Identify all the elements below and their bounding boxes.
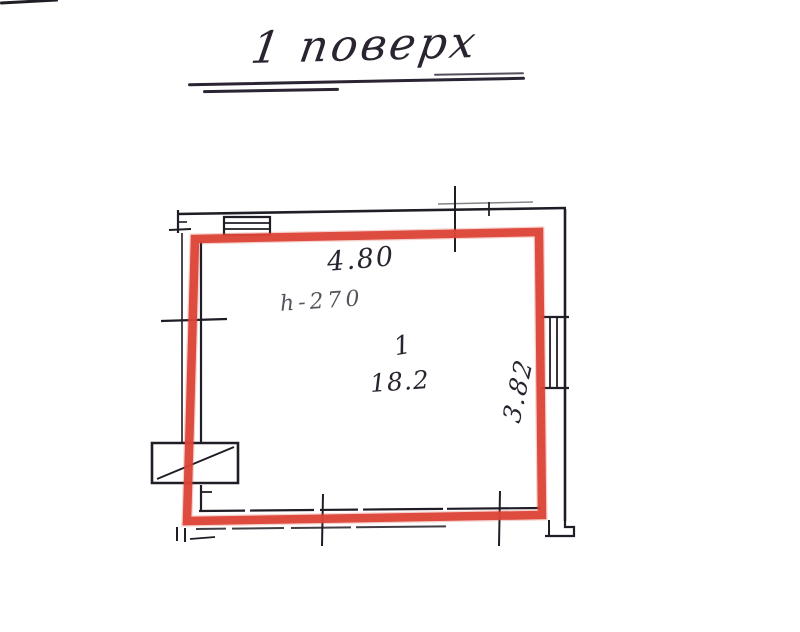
corner-tick-bottom-left-bar [190,537,215,539]
dimension-width-label: 4.80 [326,243,396,276]
ceiling-height-label: h-270 [279,288,364,316]
vent-box-diagonal [157,447,234,479]
wall-tick-left-upper [169,229,191,230]
room-outline-red [187,232,542,521]
outer-wall-top [177,208,566,214]
room-area-label: 18.2 [369,367,430,396]
floor-plan-drawing [0,0,800,632]
outer-wall-bottom [196,526,476,529]
outer-wall-top-double-stroke [438,202,533,204]
floor-plan-page: 1 поверх [0,0,800,632]
room-outline-halo [187,232,542,521]
